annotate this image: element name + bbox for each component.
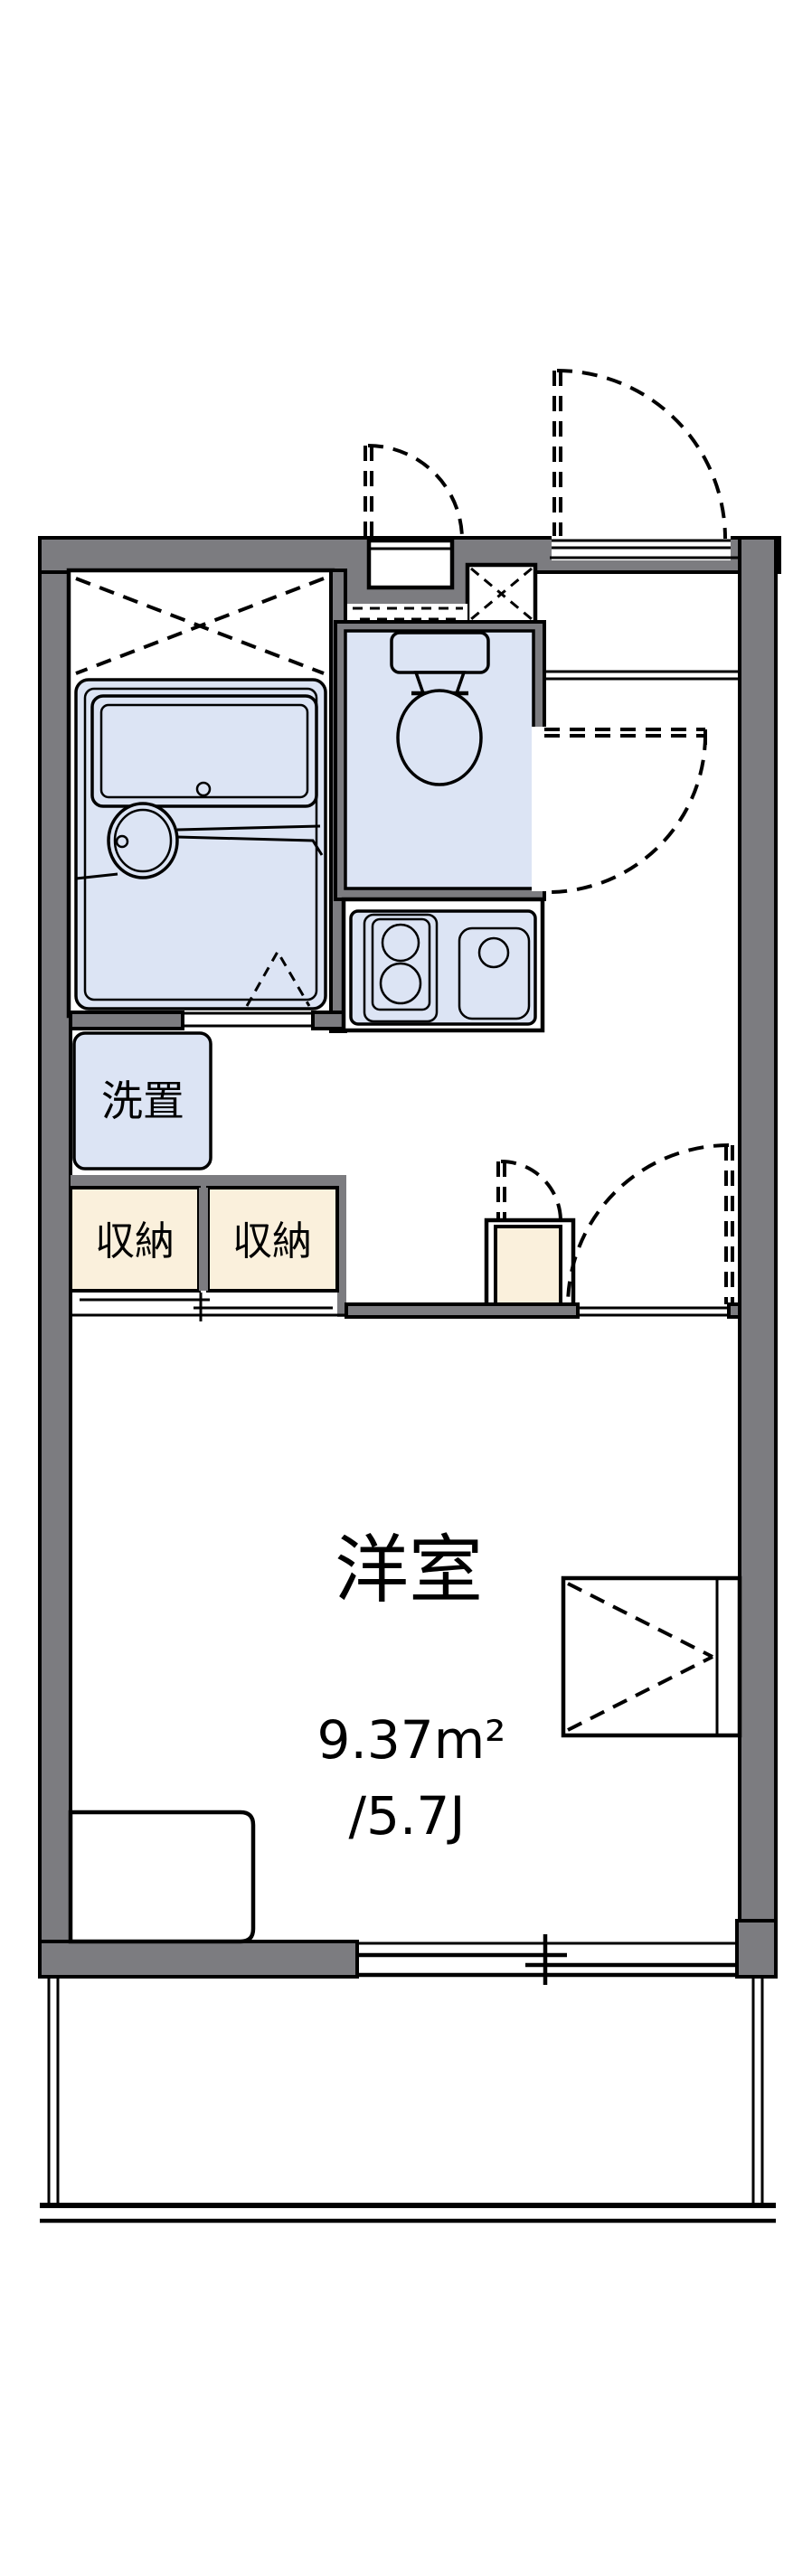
wall-south-right-corner xyxy=(737,1921,776,1977)
storage-left-label: 収納 xyxy=(95,1218,175,1264)
south-window xyxy=(355,1934,739,1985)
bathtub xyxy=(92,696,316,806)
balcony xyxy=(40,1977,776,2221)
water-heater-door-arc xyxy=(501,1161,561,1221)
storage-right-label: 収納 xyxy=(232,1218,312,1264)
kitchen xyxy=(344,899,543,1030)
wall-west xyxy=(40,538,71,1977)
floor-plan: 洗置 収納 収納 洋室 9.37m² /5.7J xyxy=(0,0,812,2576)
partition-jamb xyxy=(729,1304,740,1317)
entrance-door-swing-arc xyxy=(557,371,725,539)
storage-top-wall xyxy=(71,1175,346,1188)
wall-south-left xyxy=(40,1941,357,1977)
main-room: 洋室 9.37m² /5.7J xyxy=(71,1528,740,1941)
partition-wall xyxy=(346,1304,578,1317)
meter-box-door-arc xyxy=(368,446,462,540)
wall-east xyxy=(740,538,776,1941)
room-area-tatami-label: /5.7J xyxy=(349,1785,466,1847)
water-heater xyxy=(486,1161,573,1306)
toilet-tank xyxy=(392,633,488,672)
entrance xyxy=(544,371,740,679)
toilet-door-opening xyxy=(532,727,548,891)
toilet-bowl xyxy=(398,691,481,785)
washbasin xyxy=(109,804,177,878)
bath-south-wall-right xyxy=(313,1012,345,1029)
bed-outline xyxy=(71,1812,253,1941)
toilet-door-arc xyxy=(546,735,705,892)
washer-label: 洗置 xyxy=(101,1076,184,1125)
toilet-room xyxy=(335,622,705,899)
washer-space: 洗置 xyxy=(74,1033,211,1169)
room-name-label: 洋室 xyxy=(335,1528,483,1613)
room-area-m2-label: 9.37m² xyxy=(317,1709,506,1771)
storage: 収納 収納 xyxy=(71,1175,346,1321)
water-heater-box xyxy=(496,1227,561,1306)
bathroom xyxy=(69,570,345,1031)
floor-plan-canvas: 洗置 収納 収納 洋室 9.37m² /5.7J xyxy=(0,0,812,2576)
bath-south-wall-left xyxy=(71,1012,183,1029)
closet xyxy=(563,1578,740,1735)
room-door-arc xyxy=(568,1145,729,1306)
storage-divider xyxy=(199,1188,208,1291)
